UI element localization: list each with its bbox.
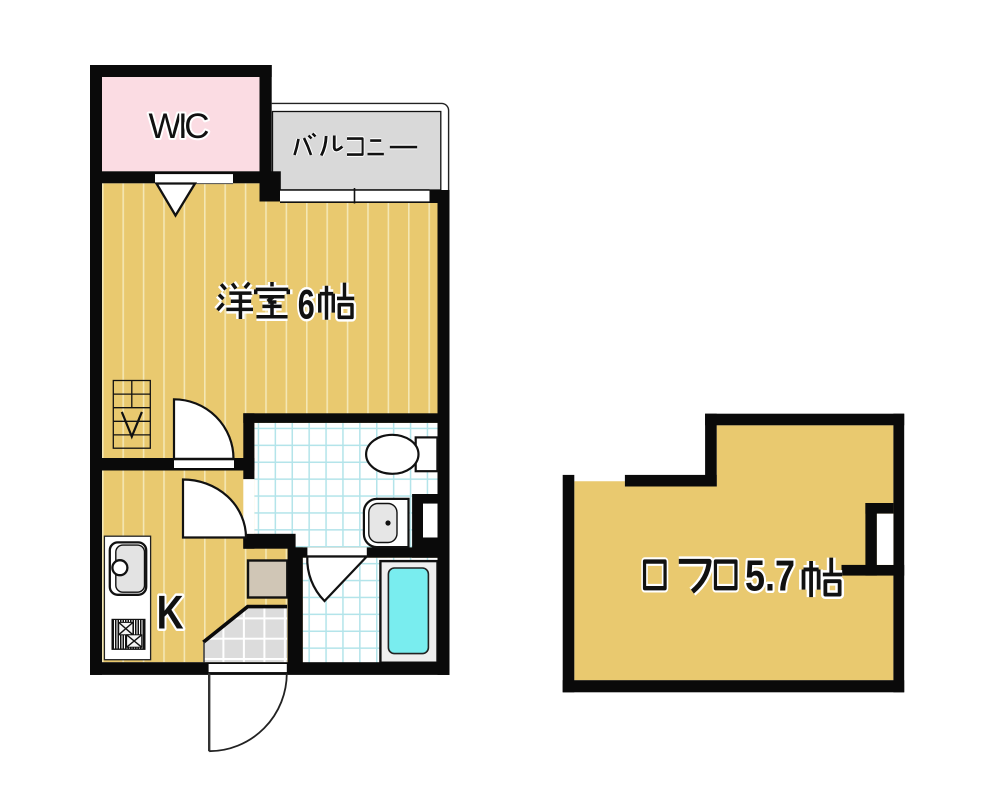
svg-text:6: 6 xyxy=(298,281,315,328)
svg-text:WIC: WIC xyxy=(149,107,210,146)
svg-text:5.7: 5.7 xyxy=(745,552,795,601)
svg-text:K: K xyxy=(157,586,184,639)
